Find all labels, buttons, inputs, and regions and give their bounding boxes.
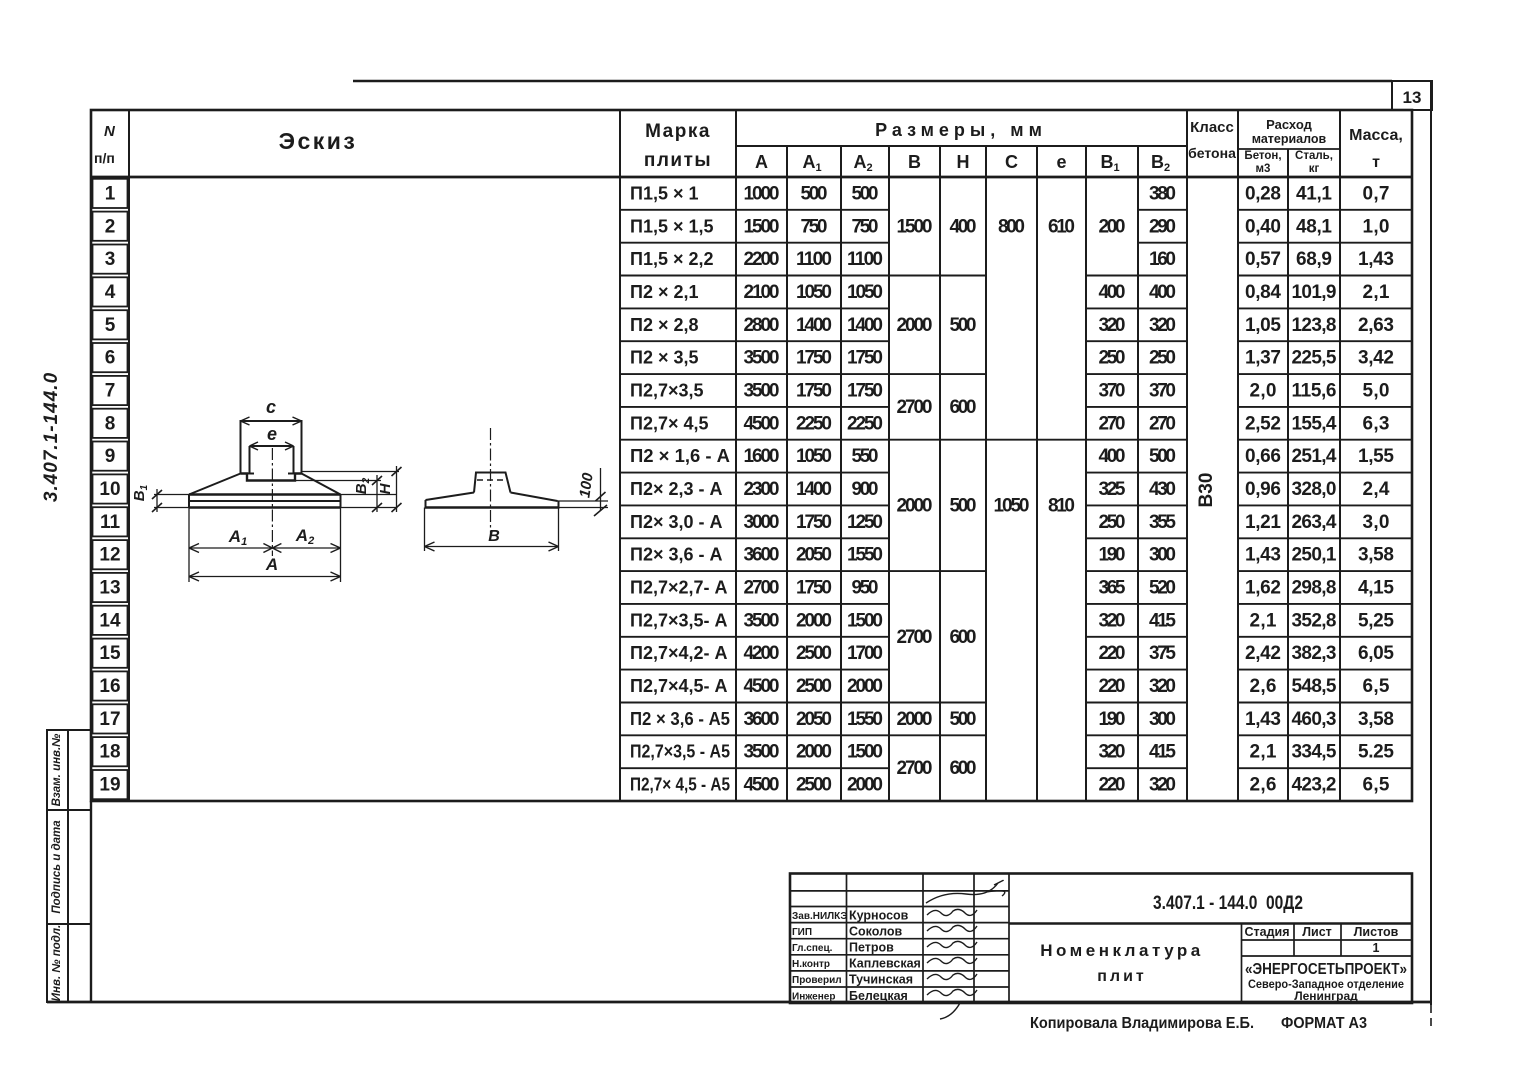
svg-text:2250: 2250 <box>796 413 832 434</box>
svg-text:Проверил: Проверил <box>792 975 842 986</box>
svg-text:2250: 2250 <box>847 413 883 434</box>
svg-text:320: 320 <box>1099 610 1126 631</box>
svg-text:2,63: 2,63 <box>1358 315 1394 336</box>
svg-text:1,37: 1,37 <box>1245 348 1281 369</box>
svg-text:3: 3 <box>105 249 116 270</box>
svg-text:123,8: 123,8 <box>1292 315 1337 336</box>
svg-text:2,0: 2,0 <box>1250 381 1277 402</box>
svg-text:325: 325 <box>1099 479 1126 500</box>
svg-text:2500: 2500 <box>796 676 832 697</box>
svg-text:68,9: 68,9 <box>1296 249 1332 270</box>
svg-text:Сталь,: Сталь, <box>1295 150 1333 162</box>
svg-text:Зав.НИЛКЭ: Зав.НИЛКЭ <box>792 911 848 922</box>
svg-text:13: 13 <box>99 578 120 599</box>
svg-text:плиты: плиты <box>644 150 712 171</box>
svg-text:4: 4 <box>105 282 116 303</box>
svg-text:0,84: 0,84 <box>1245 282 1281 303</box>
svg-text:4500: 4500 <box>744 775 780 796</box>
svg-text:500: 500 <box>950 315 977 336</box>
svg-text:225,5: 225,5 <box>1292 348 1337 369</box>
svg-text:0,66: 0,66 <box>1245 446 1281 467</box>
svg-text:2300: 2300 <box>744 479 780 500</box>
svg-text:П2,7×3,5: П2,7×3,5 <box>630 381 704 401</box>
svg-text:1,43: 1,43 <box>1245 709 1281 730</box>
svg-text:материалов: материалов <box>1252 132 1327 146</box>
svg-text:250,1: 250,1 <box>1292 545 1337 566</box>
svg-text:400: 400 <box>1149 282 1176 303</box>
svg-text:0,57: 0,57 <box>1245 249 1281 270</box>
svg-text:е: е <box>267 424 277 444</box>
svg-text:т: т <box>1372 154 1380 171</box>
svg-text:1500: 1500 <box>847 610 883 631</box>
svg-text:1750: 1750 <box>847 381 883 402</box>
svg-text:П2,7×4,2- А: П2,7×4,2- А <box>630 643 728 663</box>
svg-text:1050: 1050 <box>796 282 832 303</box>
svg-text:1,0: 1,0 <box>1363 216 1390 237</box>
svg-text:400: 400 <box>1099 282 1126 303</box>
svg-text:251,4: 251,4 <box>1292 446 1337 467</box>
svg-text:300: 300 <box>1149 709 1176 730</box>
svg-text:П2,7× 4,5 - А5: П2,7× 4,5 - А5 <box>630 775 730 795</box>
svg-text:П1,5 × 1,5: П1,5 × 1,5 <box>630 216 714 236</box>
svg-text:1: 1 <box>105 183 116 204</box>
svg-text:1,62: 1,62 <box>1245 578 1281 599</box>
svg-text:6,5: 6,5 <box>1363 775 1390 796</box>
svg-text:250: 250 <box>1149 348 1176 369</box>
svg-text:3600: 3600 <box>744 709 780 730</box>
svg-text:4500: 4500 <box>744 413 780 434</box>
svg-text:4,15: 4,15 <box>1358 578 1394 599</box>
svg-text:800: 800 <box>998 216 1025 237</box>
svg-text:1750: 1750 <box>796 381 832 402</box>
svg-text:А2: А2 <box>853 152 872 174</box>
svg-text:1550: 1550 <box>847 545 883 566</box>
svg-text:В1: В1 <box>131 484 150 501</box>
svg-text:2500: 2500 <box>796 643 832 664</box>
svg-text:Номенклатура: Номенклатура <box>1040 941 1204 960</box>
svg-text:370: 370 <box>1149 381 1176 402</box>
svg-text:В: В <box>908 152 921 172</box>
svg-text:Расход: Расход <box>1266 117 1312 132</box>
svg-text:2700: 2700 <box>897 627 933 648</box>
svg-text:Масса,: Масса, <box>1349 127 1403 144</box>
svg-text:500: 500 <box>950 709 977 730</box>
svg-text:Марка: Марка <box>645 121 711 142</box>
svg-text:0,28: 0,28 <box>1245 183 1281 204</box>
svg-text:298,8: 298,8 <box>1292 578 1337 599</box>
svg-text:П2 × 2,1: П2 × 2,1 <box>630 282 698 302</box>
svg-text:«ЭНЕРГОСЕТЬПРОЕКТ»: «ЭНЕРГОСЕТЬПРОЕКТ» <box>1245 961 1407 978</box>
svg-text:17: 17 <box>99 709 120 730</box>
svg-text:1500: 1500 <box>897 216 933 237</box>
svg-text:П2,7×4,5- А: П2,7×4,5- А <box>630 676 728 696</box>
svg-text:2000: 2000 <box>796 742 832 763</box>
svg-text:500: 500 <box>852 183 879 204</box>
svg-text:2,52: 2,52 <box>1245 413 1281 434</box>
svg-text:5.25: 5.25 <box>1358 742 1394 763</box>
svg-text:3500: 3500 <box>744 610 780 631</box>
svg-text:2,42: 2,42 <box>1245 643 1281 664</box>
svg-text:П2,7×3,5- А: П2,7×3,5- А <box>630 610 728 630</box>
svg-text:П1,5 × 2,2: П1,5 × 2,2 <box>630 249 714 269</box>
svg-text:Лист: Лист <box>1302 925 1332 939</box>
svg-text:Листов: Листов <box>1354 925 1399 939</box>
svg-text:3,58: 3,58 <box>1358 545 1394 566</box>
svg-text:бетона: бетона <box>1188 145 1236 161</box>
svg-text:Гл.спец.: Гл.спец. <box>792 943 833 954</box>
svg-text:П2× 3,6 - А: П2× 3,6 - А <box>630 545 722 565</box>
svg-text:352,8: 352,8 <box>1292 610 1337 631</box>
svg-text:Эскиз: Эскиз <box>279 128 358 154</box>
svg-text:2500: 2500 <box>796 775 832 796</box>
svg-text:220: 220 <box>1099 643 1126 664</box>
svg-text:48,1: 48,1 <box>1296 216 1332 237</box>
svg-text:1600: 1600 <box>744 446 780 467</box>
svg-text:А2: А2 <box>295 526 314 547</box>
svg-text:0,7: 0,7 <box>1363 183 1390 204</box>
svg-text:1400: 1400 <box>796 479 832 500</box>
svg-text:270: 270 <box>1099 413 1126 434</box>
svg-text:2700: 2700 <box>897 397 933 418</box>
svg-text:2000: 2000 <box>796 610 832 631</box>
svg-text:6,3: 6,3 <box>1363 413 1390 434</box>
svg-text:101,9: 101,9 <box>1292 282 1337 303</box>
svg-text:N: N <box>104 123 116 140</box>
svg-text:610: 610 <box>1048 216 1075 237</box>
svg-text:423,2: 423,2 <box>1292 775 1337 796</box>
svg-text:4500: 4500 <box>744 676 780 697</box>
svg-text:П1,5 × 1: П1,5 × 1 <box>630 183 698 203</box>
svg-text:Н.контр: Н.контр <box>792 959 830 970</box>
svg-text:0,40: 0,40 <box>1245 216 1281 237</box>
svg-text:115,6: 115,6 <box>1292 381 1337 402</box>
svg-text:кг: кг <box>1309 163 1320 175</box>
svg-text:3000: 3000 <box>744 512 780 533</box>
svg-text:15: 15 <box>99 643 121 664</box>
svg-text:ГИП: ГИП <box>792 927 812 938</box>
svg-text:460,3: 460,3 <box>1292 709 1337 730</box>
svg-text:2000: 2000 <box>897 495 933 516</box>
svg-text:900: 900 <box>852 479 879 500</box>
svg-text:1750: 1750 <box>796 348 832 369</box>
svg-text:600: 600 <box>950 627 977 648</box>
svg-text:Взам. инв.№: Взам. инв.№ <box>51 734 63 807</box>
svg-text:500: 500 <box>801 183 828 204</box>
svg-text:П2,7×2,7- А: П2,7×2,7- А <box>630 578 728 598</box>
svg-text:1050: 1050 <box>994 495 1030 516</box>
svg-text:380: 380 <box>1149 183 1176 204</box>
svg-text:190: 190 <box>1099 545 1126 566</box>
svg-text:0,96: 0,96 <box>1245 479 1281 500</box>
svg-text:ФОРМАТ А3: ФОРМАТ А3 <box>1281 1015 1367 1032</box>
svg-text:П2,7×3,5 - А5: П2,7×3,5 - А5 <box>630 742 730 762</box>
svg-text:1,21: 1,21 <box>1245 512 1281 533</box>
svg-text:2,6: 2,6 <box>1250 775 1277 796</box>
svg-text:2: 2 <box>105 216 116 237</box>
svg-text:2,1: 2,1 <box>1250 610 1277 631</box>
svg-text:1: 1 <box>1373 941 1380 955</box>
svg-text:1750: 1750 <box>796 578 832 599</box>
svg-text:2700: 2700 <box>897 758 933 779</box>
svg-text:200: 200 <box>1099 216 1126 237</box>
svg-text:5: 5 <box>105 315 116 336</box>
svg-text:3,0: 3,0 <box>1363 512 1390 533</box>
svg-text:Белецкая: Белецкая <box>849 989 908 1003</box>
svg-text:Соколов: Соколов <box>849 924 902 938</box>
svg-text:3,58: 3,58 <box>1358 709 1394 730</box>
svg-text:В1: В1 <box>1100 152 1119 174</box>
svg-text:2050: 2050 <box>796 709 832 730</box>
svg-text:1,55: 1,55 <box>1358 446 1394 467</box>
svg-text:290: 290 <box>1149 216 1176 237</box>
svg-text:4200: 4200 <box>744 643 780 664</box>
svg-text:370: 370 <box>1099 381 1126 402</box>
svg-text:8: 8 <box>105 413 116 434</box>
svg-text:1,43: 1,43 <box>1245 545 1281 566</box>
svg-text:Ленинград: Ленинград <box>1294 989 1358 1003</box>
svg-text:600: 600 <box>950 397 977 418</box>
svg-text:320: 320 <box>1099 315 1126 336</box>
svg-text:270: 270 <box>1149 413 1176 434</box>
svg-text:Петров: Петров <box>849 941 894 955</box>
svg-text:1700: 1700 <box>847 643 883 664</box>
svg-text:500: 500 <box>950 495 977 516</box>
svg-text:1050: 1050 <box>847 282 883 303</box>
svg-text:375: 375 <box>1149 643 1176 664</box>
svg-text:6,05: 6,05 <box>1358 643 1394 664</box>
svg-text:10: 10 <box>99 479 120 500</box>
svg-text:600: 600 <box>950 758 977 779</box>
svg-text:3600: 3600 <box>744 545 780 566</box>
svg-text:100: 100 <box>576 471 596 499</box>
svg-text:1,05: 1,05 <box>1245 315 1281 336</box>
svg-text:415: 415 <box>1149 610 1176 631</box>
svg-text:1750: 1750 <box>847 348 883 369</box>
svg-text:1400: 1400 <box>796 315 832 336</box>
svg-text:2,4: 2,4 <box>1363 479 1390 500</box>
svg-text:41,1: 41,1 <box>1296 183 1332 204</box>
svg-text:2000: 2000 <box>847 775 883 796</box>
svg-text:2100: 2100 <box>744 282 780 303</box>
svg-text:3500: 3500 <box>744 742 780 763</box>
svg-text:320: 320 <box>1149 315 1176 336</box>
svg-text:1250: 1250 <box>847 512 883 533</box>
svg-text:13: 13 <box>1403 88 1422 107</box>
svg-text:320: 320 <box>1099 742 1126 763</box>
svg-text:1000: 1000 <box>744 183 780 204</box>
svg-text:е: е <box>1056 152 1066 172</box>
svg-text:1500: 1500 <box>744 216 780 237</box>
svg-text:3.407.1 - 144.0 00Д2: 3.407.1 - 144.0 00Д2 <box>1153 893 1303 914</box>
svg-text:П2× 2,3 - А: П2× 2,3 - А <box>630 479 722 499</box>
svg-text:2800: 2800 <box>744 315 780 336</box>
svg-text:2,1: 2,1 <box>1363 282 1390 303</box>
svg-text:220: 220 <box>1099 775 1126 796</box>
svg-text:1100: 1100 <box>847 249 883 270</box>
svg-text:320: 320 <box>1149 775 1176 796</box>
svg-text:П2 × 3,5: П2 × 3,5 <box>630 348 698 368</box>
svg-text:С: С <box>1005 152 1018 172</box>
svg-text:Подпись и дата: Подпись и дата <box>51 820 63 914</box>
svg-text:Каплевская: Каплевская <box>849 957 921 971</box>
svg-text:2700: 2700 <box>744 578 780 599</box>
svg-text:П2 × 3,6 - А5: П2 × 3,6 - А5 <box>630 709 730 729</box>
svg-text:430: 430 <box>1149 479 1176 500</box>
svg-text:11: 11 <box>100 512 121 533</box>
svg-text:160: 160 <box>1149 249 1176 270</box>
svg-text:6,5: 6,5 <box>1363 676 1390 697</box>
svg-text:810: 810 <box>1048 495 1075 516</box>
svg-text:П2× 3,0 - А: П2× 3,0 - А <box>630 512 722 532</box>
svg-text:1050: 1050 <box>796 446 832 467</box>
svg-text:1550: 1550 <box>847 709 883 730</box>
svg-text:250: 250 <box>1099 348 1126 369</box>
svg-text:19: 19 <box>99 775 120 796</box>
svg-text:3,42: 3,42 <box>1358 348 1394 369</box>
svg-text:400: 400 <box>950 216 977 237</box>
svg-text:В2: В2 <box>1151 152 1170 174</box>
svg-text:750: 750 <box>852 216 879 237</box>
svg-text:334,5: 334,5 <box>1292 742 1337 763</box>
svg-text:Тучинская: Тучинская <box>849 973 913 987</box>
svg-text:548,5: 548,5 <box>1292 676 1337 697</box>
svg-text:П2 × 2,8: П2 × 2,8 <box>630 315 698 335</box>
svg-text:2000: 2000 <box>897 709 933 730</box>
svg-text:м3: м3 <box>1256 163 1271 175</box>
svg-text:750: 750 <box>801 216 828 237</box>
svg-text:365: 365 <box>1099 578 1126 599</box>
svg-text:2000: 2000 <box>897 315 933 336</box>
svg-text:2000: 2000 <box>847 676 883 697</box>
svg-text:п/п: п/п <box>94 150 115 166</box>
svg-text:2200: 2200 <box>744 249 780 270</box>
svg-text:П2 × 1,6 - А: П2 × 1,6 - А <box>630 446 730 466</box>
svg-text:2,1: 2,1 <box>1250 742 1277 763</box>
svg-text:355: 355 <box>1149 512 1176 533</box>
svg-text:415: 415 <box>1149 742 1176 763</box>
svg-text:9: 9 <box>105 446 116 467</box>
svg-text:Инженер: Инженер <box>792 991 835 1002</box>
svg-text:1500: 1500 <box>847 742 883 763</box>
svg-text:1750: 1750 <box>796 512 832 533</box>
svg-text:Н: Н <box>957 152 970 172</box>
svg-text:1400: 1400 <box>847 315 883 336</box>
svg-text:18: 18 <box>99 742 120 763</box>
svg-text:220: 220 <box>1099 676 1126 697</box>
svg-text:Стадия: Стадия <box>1244 925 1289 939</box>
svg-text:2,6: 2,6 <box>1250 676 1277 697</box>
svg-text:155,4: 155,4 <box>1292 413 1337 434</box>
svg-text:А1: А1 <box>228 527 247 548</box>
svg-text:В30: В30 <box>1196 473 1217 508</box>
svg-text:Инв. № подл.: Инв. № подл. <box>51 925 63 1001</box>
svg-text:320: 320 <box>1149 676 1176 697</box>
svg-text:Курносов: Курносов <box>849 908 909 922</box>
svg-text:А: А <box>755 152 768 172</box>
svg-text:Размеры, мм: Размеры, мм <box>875 120 1047 140</box>
svg-text:16: 16 <box>99 676 120 697</box>
svg-text:плит: плит <box>1097 968 1147 985</box>
svg-text:5,25: 5,25 <box>1358 610 1394 631</box>
svg-text:А1: А1 <box>802 152 821 174</box>
svg-text:14: 14 <box>99 610 121 631</box>
svg-text:В: В <box>488 528 500 545</box>
svg-text:Копировала Владимирова Е.Б.: Копировала Владимирова Е.Б. <box>1030 1015 1254 1032</box>
svg-text:263,4: 263,4 <box>1292 512 1337 533</box>
svg-text:Н: Н <box>377 482 394 494</box>
svg-text:382,3: 382,3 <box>1292 643 1337 664</box>
svg-text:190: 190 <box>1099 709 1126 730</box>
svg-text:Класс: Класс <box>1190 119 1234 136</box>
svg-text:5,0: 5,0 <box>1363 381 1390 402</box>
svg-text:А: А <box>265 555 278 574</box>
svg-text:с: с <box>266 397 276 417</box>
svg-text:500: 500 <box>1149 446 1176 467</box>
svg-text:400: 400 <box>1099 446 1126 467</box>
svg-text:520: 520 <box>1149 578 1176 599</box>
svg-text:950: 950 <box>852 578 879 599</box>
svg-text:1,43: 1,43 <box>1358 249 1394 270</box>
svg-text:3500: 3500 <box>744 348 780 369</box>
svg-text:3500: 3500 <box>744 381 780 402</box>
svg-text:3.407.1-144.0: 3.407.1-144.0 <box>41 372 62 502</box>
svg-text:1100: 1100 <box>796 249 832 270</box>
svg-text:12: 12 <box>99 545 120 566</box>
svg-text:300: 300 <box>1149 545 1176 566</box>
svg-text:328,0: 328,0 <box>1292 479 1337 500</box>
svg-text:2050: 2050 <box>796 545 832 566</box>
svg-text:7: 7 <box>105 381 116 402</box>
svg-text:6: 6 <box>105 348 116 369</box>
svg-text:550: 550 <box>852 446 879 467</box>
svg-text:250: 250 <box>1099 512 1126 533</box>
svg-text:Бетон,: Бетон, <box>1244 150 1281 162</box>
svg-text:П2,7× 4,5: П2,7× 4,5 <box>630 413 709 433</box>
